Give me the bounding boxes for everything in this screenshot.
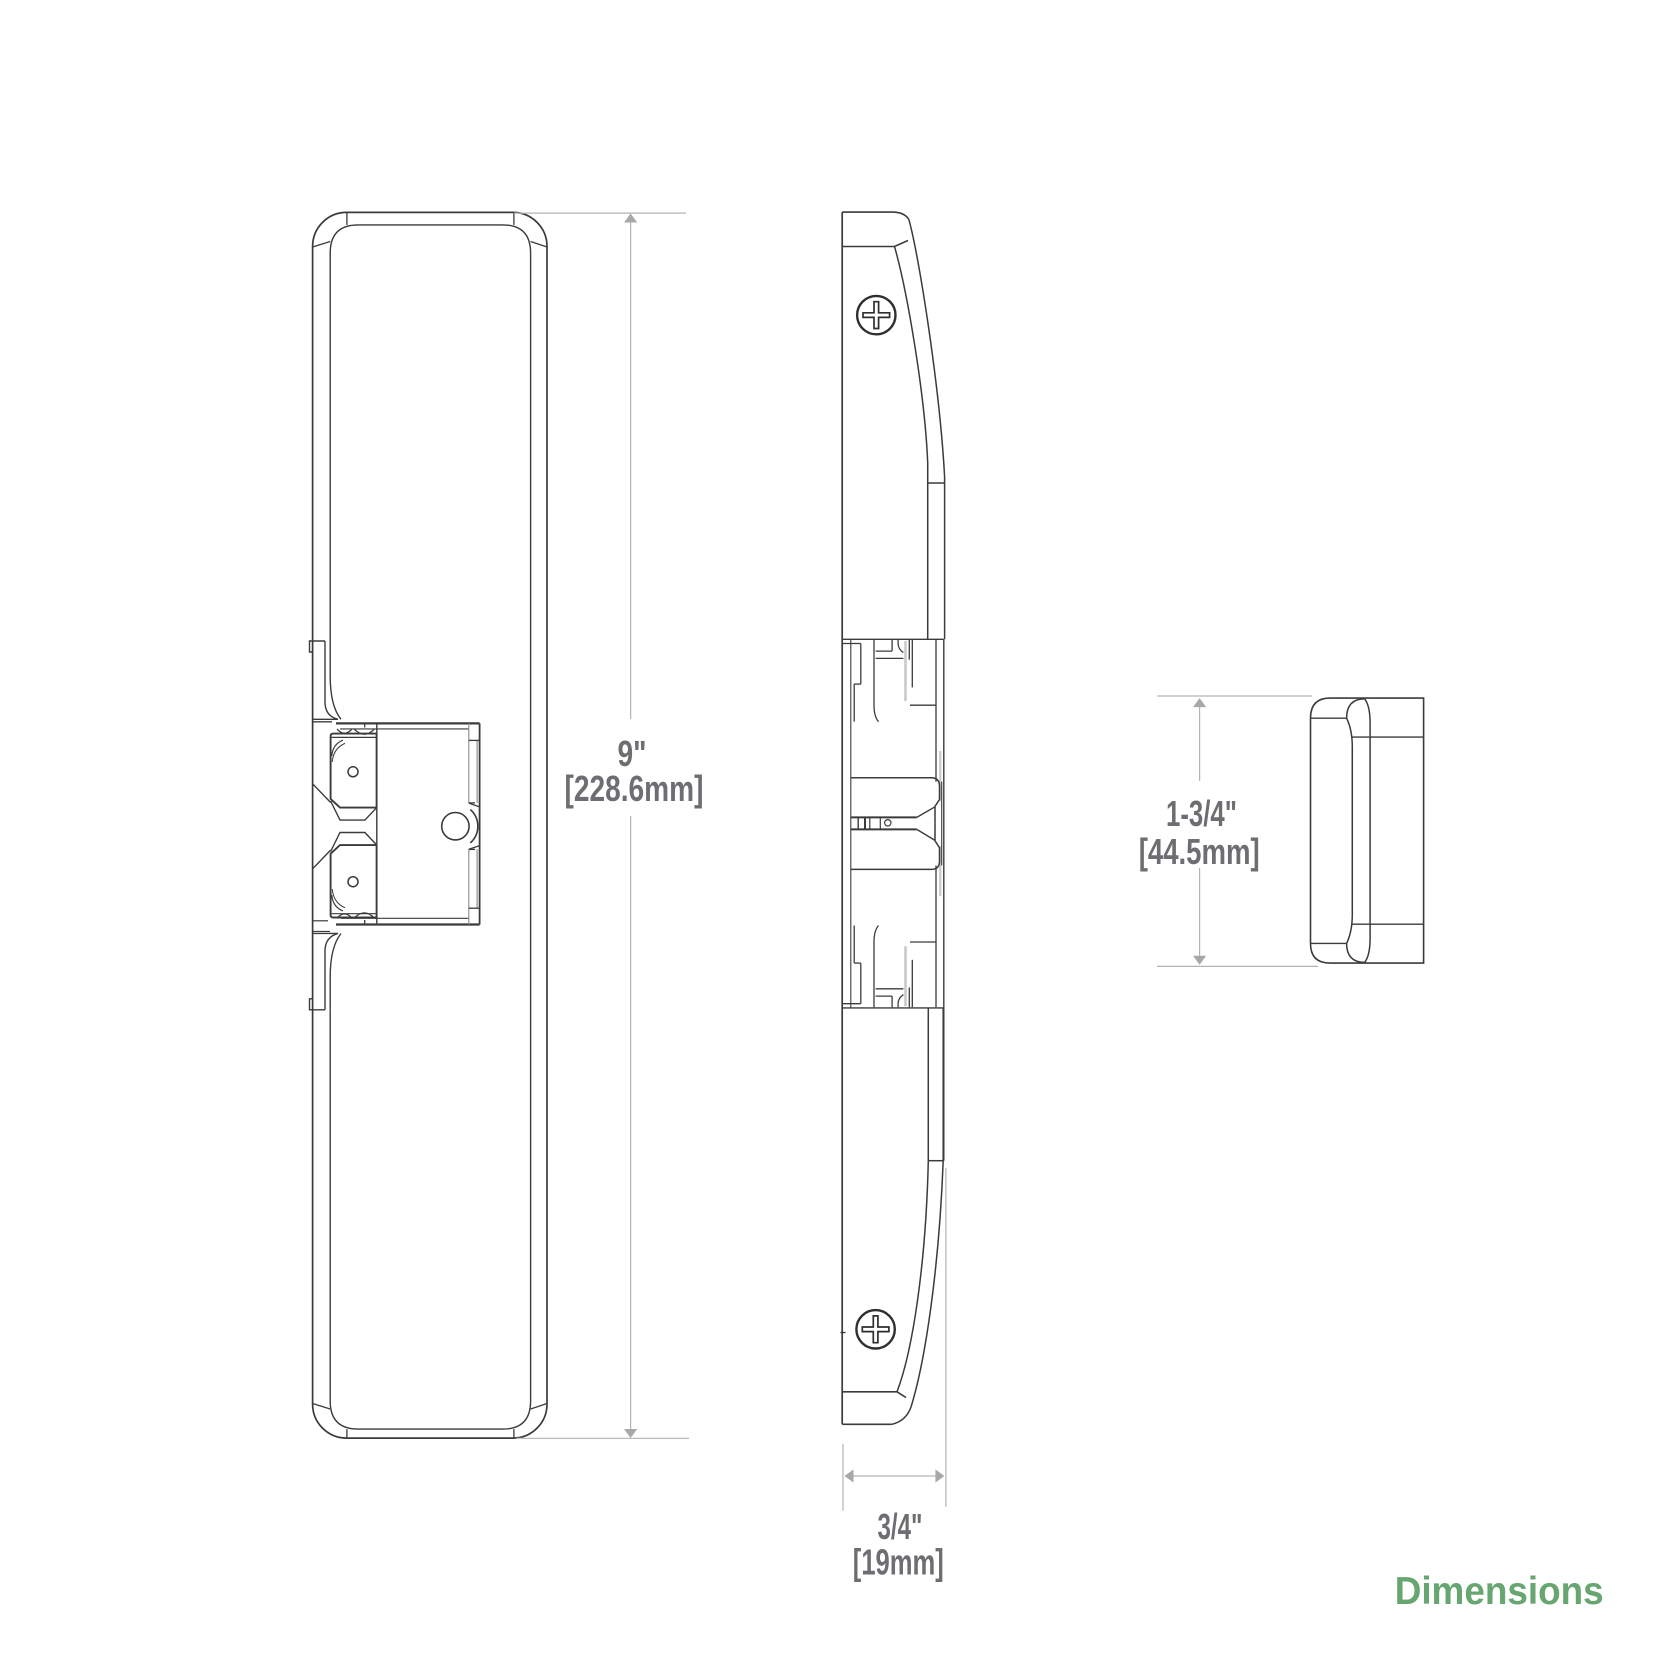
- svg-text:1-3/4": 1-3/4": [1166, 793, 1237, 834]
- svg-text:[44.5mm]: [44.5mm]: [1139, 831, 1260, 872]
- svg-text:Dimensions: Dimensions: [1395, 1570, 1604, 1613]
- svg-text:[228.6mm]: [228.6mm]: [565, 768, 704, 809]
- svg-text:[19mm]: [19mm]: [853, 1542, 944, 1583]
